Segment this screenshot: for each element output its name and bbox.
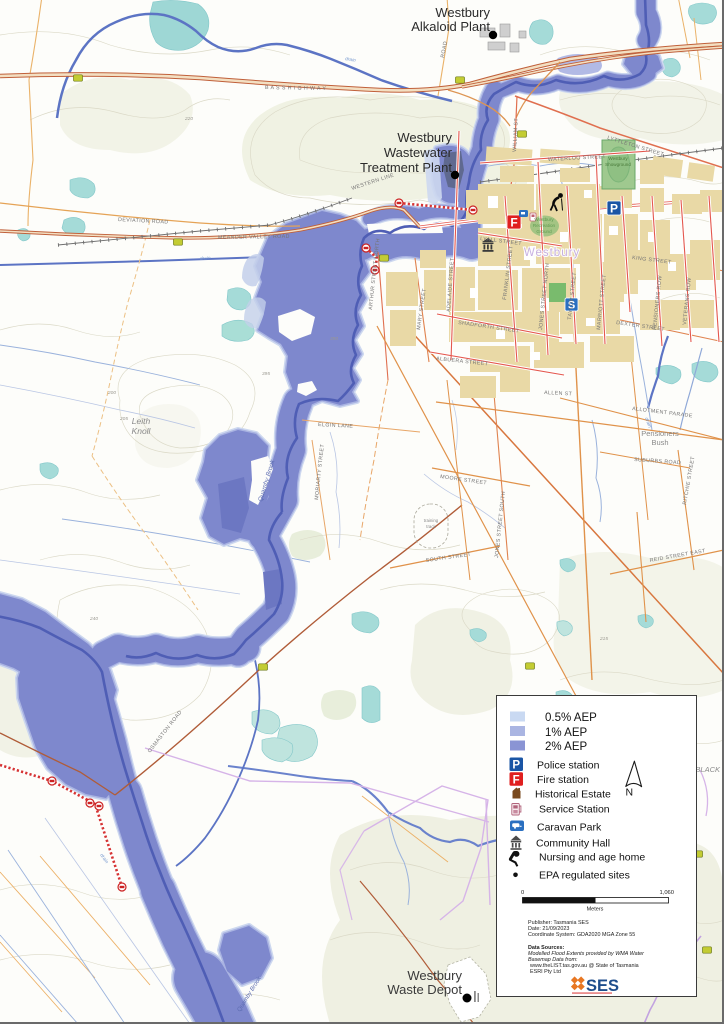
svg-text:drain: drain: [200, 255, 211, 262]
svg-text:200: 200: [107, 390, 116, 396]
svg-text:Leith: Leith: [132, 416, 151, 426]
svg-text:Pensioners: Pensioners: [641, 429, 679, 438]
svg-text:ESRI Pty Ltd: ESRI Pty Ltd: [530, 969, 561, 975]
svg-text:Police station: Police station: [537, 760, 600, 772]
svg-text:track: track: [426, 524, 436, 529]
svg-text:Westbury: Westbury: [524, 247, 580, 259]
svg-text:P: P: [512, 760, 520, 772]
svg-text:Treatment Plant: Treatment Plant: [360, 160, 452, 175]
svg-text:0: 0: [521, 890, 524, 896]
svg-text:Knoll: Knoll: [132, 426, 152, 436]
svg-text:Westbury: Westbury: [534, 217, 554, 222]
svg-text:1% AEP: 1% AEP: [545, 727, 588, 739]
svg-text:390: 390: [330, 336, 338, 342]
svg-text:Westbury: Westbury: [608, 156, 628, 161]
svg-text:Fire station: Fire station: [537, 774, 589, 786]
svg-text:2% AEP: 2% AEP: [545, 741, 588, 753]
svg-text:Meters: Meters: [587, 907, 604, 913]
svg-text:Westbury: Westbury: [407, 968, 462, 983]
svg-text:Bush: Bush: [651, 438, 668, 447]
svg-text:Community Hall: Community Hall: [536, 838, 610, 850]
svg-text:SES: SES: [586, 977, 619, 995]
svg-text:BLACK: BLACK: [695, 765, 721, 774]
svg-text:Showground: Showground: [605, 162, 631, 167]
svg-text:Service Station: Service Station: [539, 804, 610, 816]
svg-text:205: 205: [119, 416, 128, 422]
svg-text:220: 220: [184, 116, 193, 122]
svg-text:Recreation: Recreation: [533, 223, 556, 228]
svg-text:training: training: [424, 518, 439, 523]
svg-text:MEANDER VALLEY ROAD: MEANDER VALLEY ROAD: [218, 234, 290, 241]
svg-text:Waste Depot: Waste Depot: [387, 982, 462, 997]
svg-text:F: F: [510, 216, 517, 230]
svg-text:Historical Estate: Historical Estate: [535, 789, 611, 801]
svg-text:P: P: [610, 202, 618, 216]
svg-text:395: 395: [262, 371, 270, 377]
svg-text:B A S S H I G H W A Y: B A S S H I G H W A Y: [265, 85, 326, 92]
svg-text:Nursing and age home: Nursing and age home: [539, 852, 645, 864]
svg-text:F: F: [513, 774, 520, 786]
svg-text:N: N: [626, 787, 634, 799]
svg-text:Westbury: Westbury: [435, 5, 490, 20]
svg-text:Alkaloid Plant: Alkaloid Plant: [411, 19, 490, 34]
svg-text:0.5% AEP: 0.5% AEP: [545, 712, 597, 724]
svg-text:1,060: 1,060: [659, 890, 674, 896]
svg-text:Ground: Ground: [536, 229, 552, 234]
svg-text:240: 240: [89, 616, 98, 622]
svg-text:Coordinate System: GDA2020 MGA: Coordinate System: GDA2020 MGA Zone 55: [528, 932, 635, 938]
svg-text:Westbury: Westbury: [397, 130, 452, 145]
svg-text:EPA regulated sites: EPA regulated sites: [539, 869, 630, 881]
svg-text:Caravan Park: Caravan Park: [537, 822, 602, 834]
svg-text:Wastewater: Wastewater: [384, 145, 453, 160]
svg-text:215: 215: [599, 636, 608, 642]
